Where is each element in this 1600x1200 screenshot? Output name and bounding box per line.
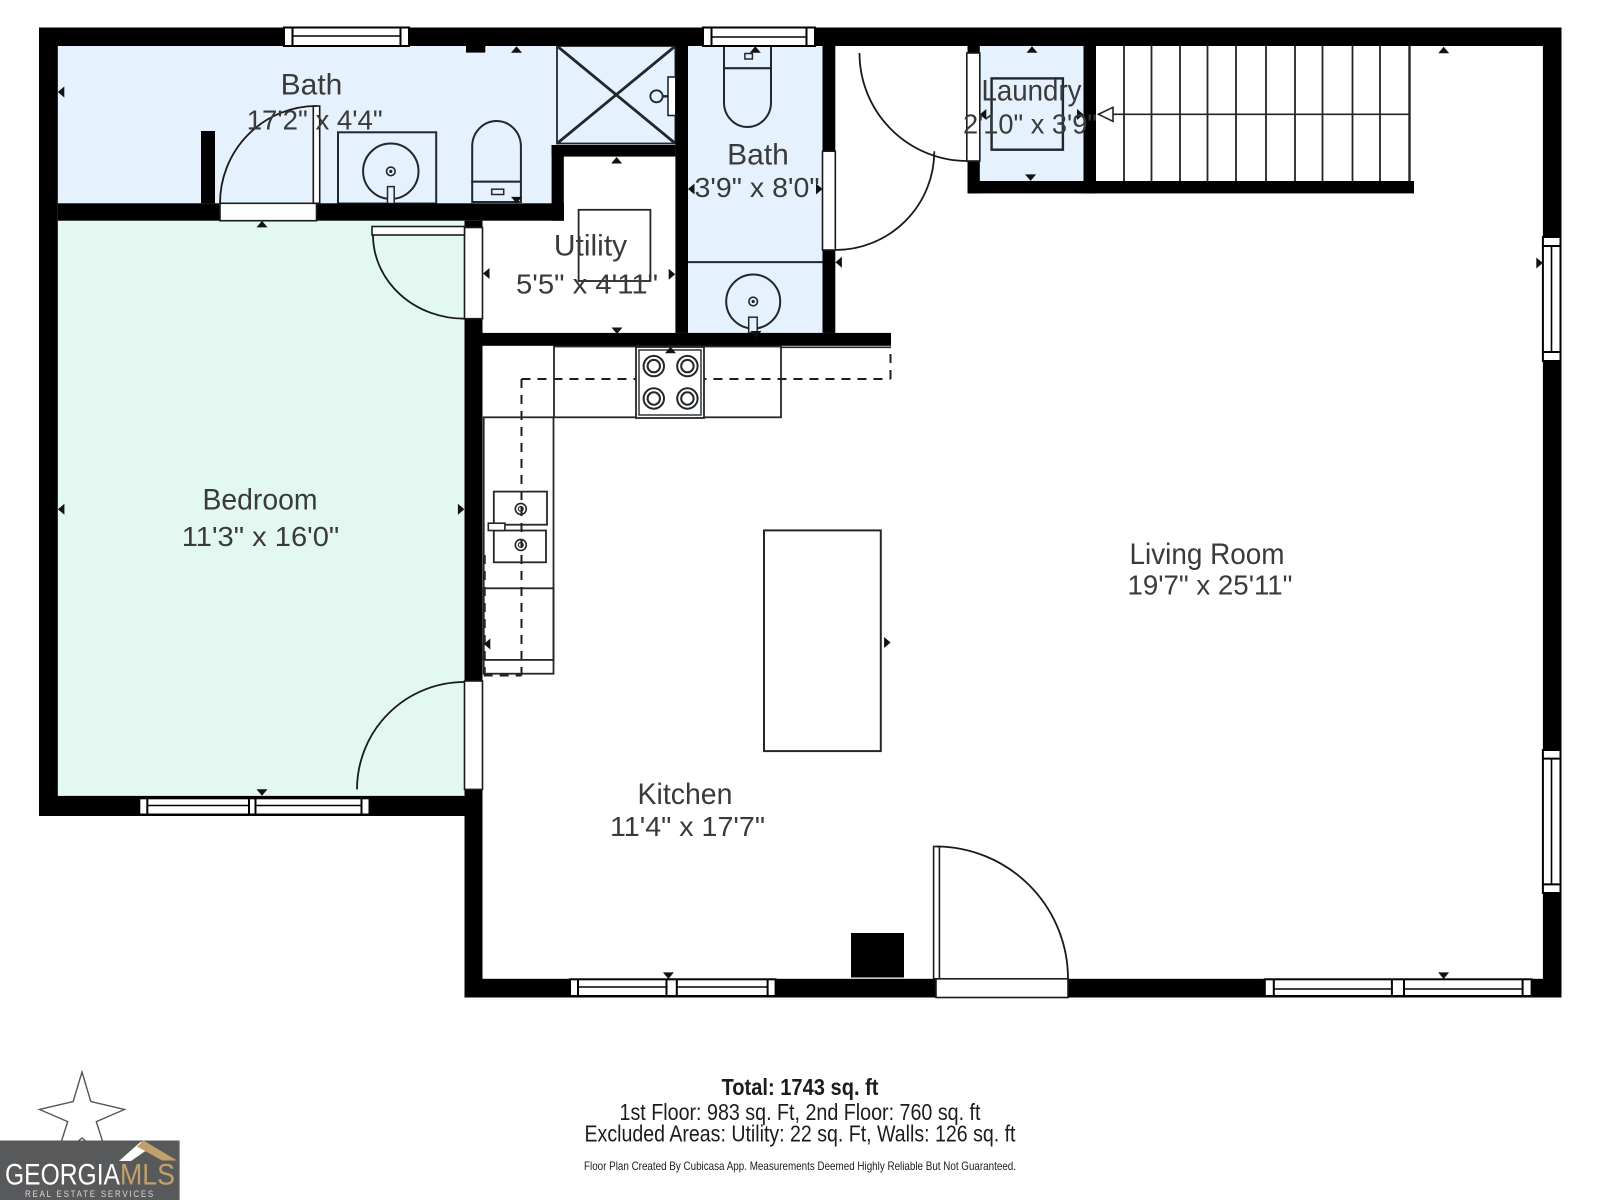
svg-text:Kitchen: Kitchen xyxy=(638,778,733,811)
svg-text:11'3" x 16'0": 11'3" x 16'0" xyxy=(182,521,340,552)
svg-text:Total: 1743 sq. ft: Total: 1743 sq. ft xyxy=(722,1074,879,1100)
svg-text:Bedroom: Bedroom xyxy=(203,484,318,517)
svg-text:Floor Plan Created By Cubicasa: Floor Plan Created By Cubicasa App. Meas… xyxy=(584,1159,1016,1173)
svg-text:2'10" x 3'9": 2'10" x 3'9" xyxy=(963,109,1097,140)
svg-text:Bath: Bath xyxy=(727,139,789,172)
svg-text:19'7" x 25'11": 19'7" x 25'11" xyxy=(1128,570,1293,601)
svg-text:REAL ESTATE SERVICES: REAL ESTATE SERVICES xyxy=(25,1189,155,1199)
svg-text:11'4" x 17'7": 11'4" x 17'7" xyxy=(610,811,765,842)
svg-text:3'9" x 8'0": 3'9" x 8'0" xyxy=(695,172,820,203)
svg-text:Laundry: Laundry xyxy=(982,75,1082,108)
svg-text:MLS: MLS xyxy=(120,1159,175,1192)
svg-text:GEORGIA: GEORGIA xyxy=(5,1159,120,1192)
svg-text:17'2" x 4'4": 17'2" x 4'4" xyxy=(247,105,383,136)
svg-text:Bath: Bath xyxy=(281,68,343,101)
svg-text:5'5" x 4'11": 5'5" x 4'11" xyxy=(516,269,658,300)
svg-text:Excluded Areas: Utility: 22 sq: Excluded Areas: Utility: 22 sq. Ft, Wall… xyxy=(585,1121,1016,1147)
svg-text:Living Room: Living Room xyxy=(1130,538,1285,571)
svg-text:Utility: Utility xyxy=(554,230,627,263)
